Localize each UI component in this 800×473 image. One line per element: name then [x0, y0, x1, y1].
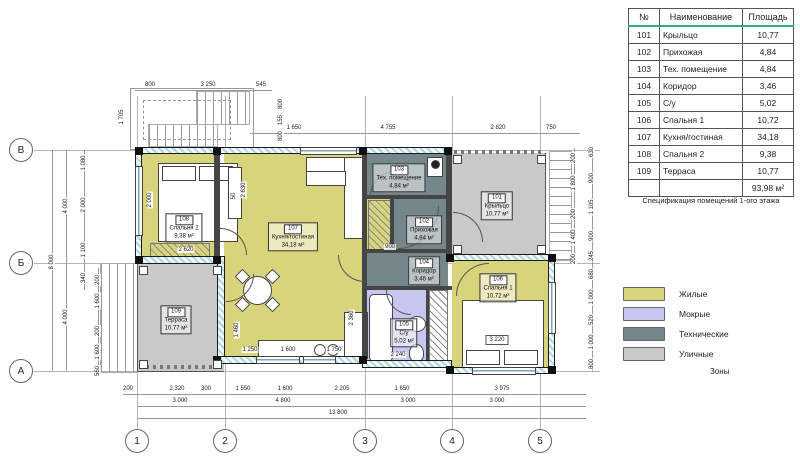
- dim-label: 560: [95, 365, 101, 377]
- dim-label: 1 250: [241, 347, 258, 353]
- spec-row: 102Прихожая4,84: [629, 44, 794, 61]
- grid-bubble-row: Б: [9, 251, 33, 275]
- dim-label: 200: [571, 152, 577, 164]
- dim-label: 2 620: [177, 247, 194, 253]
- grid-bubble-row: А: [9, 359, 33, 383]
- dim-label: 1 100: [81, 241, 87, 258]
- dim-label: 1 600: [276, 386, 293, 392]
- spec-row: 105С/у5,02: [629, 95, 794, 112]
- legend-swatch-living: [623, 287, 665, 301]
- dim-label: 1 650: [393, 386, 410, 392]
- spec-row: 109Терраса10,77: [629, 163, 794, 180]
- dim-label: 1 000: [589, 333, 595, 350]
- dim-label: 1 105: [589, 198, 595, 215]
- pier: [444, 147, 452, 155]
- dim-label: 545: [255, 82, 267, 88]
- room-label-109: 109Терраса10,77 м²: [160, 305, 191, 334]
- dim-label: 800: [278, 130, 284, 142]
- room-label-103: 103Тех. помещение4,84 м²: [372, 163, 425, 192]
- spec-row: 108Спальня 29,38: [629, 146, 794, 163]
- dim-label: 300: [200, 386, 212, 392]
- stair-dashed-outline: [143, 100, 231, 140]
- pier: [359, 356, 367, 364]
- dim-label: 2 820: [489, 125, 506, 131]
- dim-label: 2 000: [147, 191, 153, 208]
- porch-post: [453, 155, 462, 164]
- porch-post: [537, 155, 546, 164]
- dim-line: [250, 133, 580, 134]
- dim-label: 340: [81, 272, 87, 284]
- dim-label: 520: [589, 314, 595, 326]
- window-bedroom1-east: [548, 282, 556, 334]
- wall-bedroom2-terrace: [135, 256, 224, 264]
- dim-label: 2 240: [389, 352, 406, 358]
- terrace-post: [139, 266, 148, 275]
- wall-top: [135, 147, 452, 154]
- dim-label: 1 600: [95, 292, 101, 309]
- legend-swatch-outdoor: [623, 347, 665, 361]
- grid-bubble-row: В: [9, 138, 33, 162]
- sofa-seat: [306, 171, 346, 186]
- grid-bubble-col: 5: [528, 429, 552, 453]
- dim-label: 200: [571, 253, 577, 265]
- dim-label: 4 000: [63, 308, 69, 325]
- dim-label: 13 800: [328, 410, 348, 416]
- dim-line: [123, 394, 586, 395]
- dim-line: [137, 406, 586, 407]
- pier: [135, 256, 143, 264]
- dim-label: 4 000: [63, 197, 69, 214]
- porch-top-railing: [454, 150, 544, 154]
- legend-item-tech: Технические: [623, 327, 729, 341]
- wall-bath-wardrobe: [426, 288, 429, 362]
- porch-post: [537, 245, 546, 254]
- legend-swatch-tech: [623, 327, 665, 341]
- dim-label: 3 975: [493, 386, 510, 392]
- legend-item-living: Жилые: [623, 287, 707, 301]
- wall-corridor-north: [362, 249, 452, 253]
- legend-swatch-wet: [623, 307, 665, 321]
- dim-label: 200: [122, 386, 134, 392]
- floor-plan-drawing: В Б А 1 2 3 4 5: [0, 0, 800, 473]
- dim-label: 3 000: [488, 398, 505, 404]
- window-kitchen-south-2: [303, 356, 336, 364]
- dim-label: 4 800: [274, 398, 291, 404]
- wall-hall-porch: [446, 153, 452, 254]
- grid-bubble-col: 4: [440, 429, 464, 453]
- stairs-left-of-terrace: [100, 263, 138, 373]
- pier: [359, 147, 367, 155]
- pier: [135, 147, 143, 155]
- room-label-104: 104Коридор3,46 м²: [408, 256, 440, 285]
- terrace-post: [213, 266, 222, 275]
- dim-label: 2 320: [168, 386, 185, 392]
- dim-label: 900: [589, 172, 595, 184]
- legend-item-outdoor: Уличные: [623, 347, 714, 361]
- legend-caption: Зоны: [710, 367, 729, 376]
- dim-label: 800: [589, 358, 595, 370]
- dim-label: 2 000: [81, 196, 87, 213]
- dim-label: 4 755: [379, 125, 396, 131]
- dim-label: 750: [545, 125, 557, 131]
- window-kitchen-south-1: [256, 356, 300, 364]
- spec-row: 107Кухня/гостиная34,18: [629, 129, 794, 146]
- dim-line: [66, 150, 67, 371]
- dim-label: 900: [589, 230, 595, 242]
- terrace-post: [213, 360, 222, 369]
- porch-east-edge: [545, 153, 546, 254]
- terrace-post: [139, 360, 148, 369]
- dim-label: 2 205: [333, 386, 350, 392]
- pier: [446, 254, 454, 262]
- dim-label: 200: [95, 325, 101, 337]
- grid-bubble-col: 1: [125, 429, 149, 453]
- pier: [548, 254, 556, 262]
- spec-header-num: №: [629, 9, 660, 27]
- dim-label: 3 000: [399, 398, 416, 404]
- dim-label: 155: [278, 114, 284, 126]
- dim-label: 2 360: [349, 309, 355, 326]
- spec-header-name: Наименование: [660, 9, 743, 27]
- spec-table: № Наименование Площадь 101Крыльцо10,77 1…: [628, 8, 794, 197]
- legend-item-wet: Мокрые: [623, 307, 710, 321]
- room-label-101: 101Крыльцо10,77 м²: [481, 191, 513, 220]
- dim-label: 1 600: [95, 343, 101, 360]
- spec-total-row: 93,98 м²: [629, 180, 794, 197]
- dim-label: 200: [571, 208, 577, 220]
- porch-post: [453, 245, 462, 254]
- grid-bubble-col: 3: [353, 429, 377, 453]
- terrace-bottom-edge: [137, 371, 224, 372]
- wardrobe-hatch: [429, 290, 448, 362]
- pillow: [162, 166, 196, 181]
- dim-label: 1 550: [234, 386, 251, 392]
- sofa-chaise: [344, 157, 364, 239]
- terrace-left-edge: [137, 264, 138, 372]
- dim-label: 800: [144, 82, 156, 88]
- dim-label: 200: [95, 274, 101, 286]
- dim-label: 50: [231, 192, 237, 201]
- window-living-north: [300, 147, 357, 155]
- pillow: [466, 350, 500, 365]
- room-label-107: 107Кухня/гостиная34,18 м²: [268, 222, 318, 251]
- pier: [213, 256, 221, 264]
- wall-bath-south: [362, 360, 452, 368]
- dim-line: [137, 418, 586, 419]
- dim-label: 3 250: [199, 82, 216, 88]
- dim-label: 2 630: [241, 181, 247, 198]
- spec-header-area: Площадь: [743, 9, 794, 27]
- dim-label: 1 600: [279, 347, 296, 353]
- room-label-106: 106Спальня 110,72 м²: [479, 273, 516, 302]
- pier: [446, 366, 454, 374]
- pier: [213, 147, 221, 155]
- dim-label: 1 650: [285, 125, 302, 131]
- spec-row: 104Коридор3,46: [629, 78, 794, 95]
- spec-table-caption: Спецификация помещений 1-ого этажа: [628, 196, 794, 205]
- window-bedroom1-south: [472, 367, 536, 375]
- room-label-102: 102Прихожая4,84 м²: [406, 215, 442, 244]
- kitchen-sink: [314, 344, 326, 356]
- spec-row: 101Крыльцо10,77: [629, 26, 794, 44]
- dim-label: 1 750: [325, 347, 342, 353]
- dim-label: 1 705: [119, 108, 125, 125]
- dim-label: 8 000: [49, 253, 55, 270]
- dim-label: 1 080: [81, 154, 87, 171]
- spec-row: 103Тех. помещение4,84: [629, 61, 794, 78]
- dim-label: 3 220: [485, 335, 508, 345]
- dim-label: 245: [589, 250, 595, 262]
- dim-line: [574, 148, 575, 264]
- pillow: [504, 350, 538, 365]
- window-bedroom2-west: [135, 166, 143, 236]
- dim-line: [135, 90, 272, 91]
- boiler-dial: [431, 160, 440, 169]
- wall-bedroom1-north: [446, 254, 555, 261]
- pier: [548, 366, 556, 374]
- terrace-bottom-railing: [139, 365, 223, 369]
- dim-label: 900: [384, 244, 396, 250]
- dim-label: 680: [589, 268, 595, 280]
- dim-label: 1 460: [234, 321, 240, 338]
- room-label-108: 108Спальня 29,38 м²: [165, 213, 202, 242]
- dim-label: 1 400: [571, 228, 577, 245]
- dim-label: 630: [589, 146, 595, 158]
- dim-label: 800: [278, 98, 284, 110]
- stairs-right-of-porch: [549, 151, 572, 261]
- room-label-105: 105С/у5,02 м²: [390, 318, 417, 347]
- grid-bubble-col: 2: [213, 429, 237, 453]
- spec-row: 106Спальня 110,72: [629, 112, 794, 129]
- dim-label: 1 000: [589, 288, 595, 305]
- dim-label: 3 000: [171, 398, 188, 404]
- dim-label: 1 800: [571, 174, 577, 191]
